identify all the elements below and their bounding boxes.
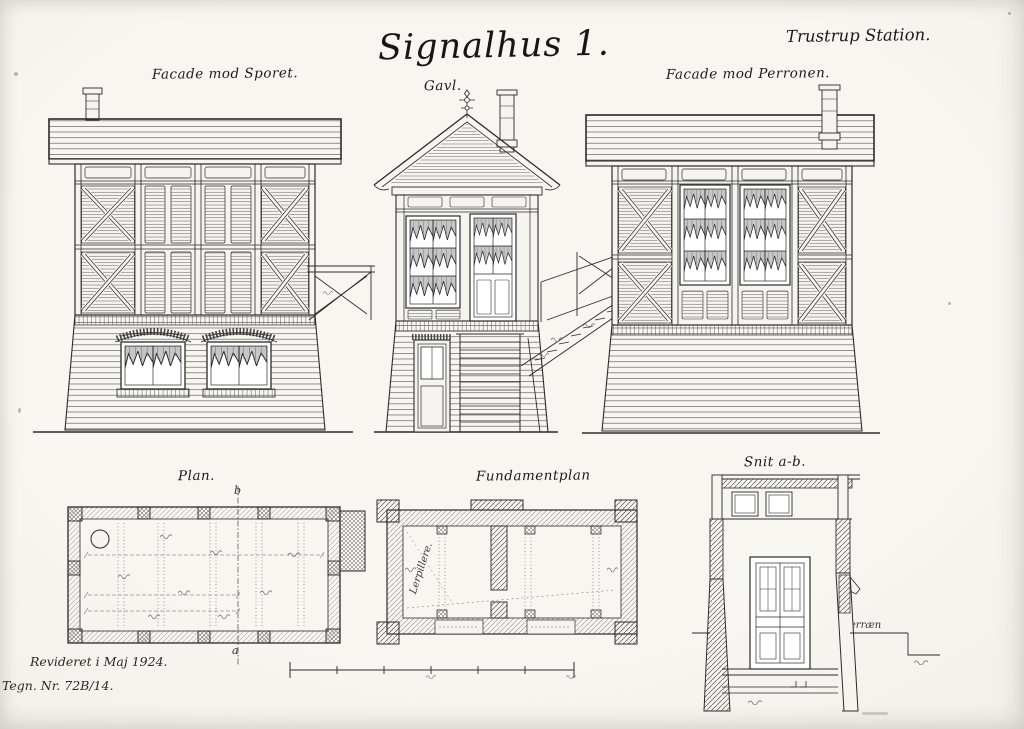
paper-speck — [14, 72, 18, 76]
section-drawing — [692, 465, 942, 717]
paper-speck — [1008, 12, 1011, 15]
gable-siding — [388, 124, 546, 185]
dimension-figures — [118, 535, 300, 619]
chimney-icon — [819, 85, 840, 149]
wall-cut-left — [704, 475, 730, 711]
floor-line — [722, 669, 838, 675]
paper-speck — [18, 408, 21, 413]
page-title: Signalhus 1. — [378, 24, 611, 69]
base-wall — [65, 315, 325, 430]
terrain-line — [850, 633, 940, 655]
chimney-icon — [83, 88, 102, 120]
stove-circle — [91, 530, 109, 548]
chimney-icon — [497, 90, 517, 152]
base-door — [412, 337, 452, 432]
wall-cut-right — [836, 475, 860, 711]
drawing-sheet: Signalhus 1. Trustrup Station. Facade mo… — [0, 0, 1024, 729]
floor-joists — [118, 523, 304, 627]
interior-door — [750, 557, 810, 669]
top-beam — [720, 479, 852, 488]
gable-window — [406, 216, 460, 308]
facade-platform-label: Facade mod Perronen. — [666, 65, 830, 83]
corner-posts — [68, 507, 340, 643]
plan-label: Plan. — [178, 468, 215, 484]
cross-wall — [491, 526, 507, 590]
plan-drawing — [60, 495, 365, 657]
station-title: Trustrup Station. — [786, 25, 931, 46]
drawing-number: Tegn. Nr. 72B/14. — [2, 678, 113, 693]
facade-platform-drawing — [578, 85, 883, 437]
platform-extension — [340, 511, 365, 571]
pier-pads — [437, 526, 601, 618]
clerestory-windows — [732, 492, 792, 516]
base-wall — [602, 325, 862, 431]
pencil-smudge — [862, 712, 888, 715]
roof-band — [49, 119, 341, 159]
gable-door — [470, 214, 516, 321]
facade-track-label: Facade mod Sporet. — [152, 65, 298, 83]
scale-bar — [288, 660, 588, 682]
foundation-drawing — [375, 492, 650, 657]
platform-bracket-drawing — [305, 246, 379, 326]
foundation-label: Fundamentplan — [476, 467, 591, 484]
dimension-lines — [84, 552, 324, 614]
finial-icon — [459, 90, 475, 118]
tie-lines — [439, 534, 599, 610]
paper-speck — [948, 302, 951, 305]
ground-beams — [722, 687, 838, 693]
